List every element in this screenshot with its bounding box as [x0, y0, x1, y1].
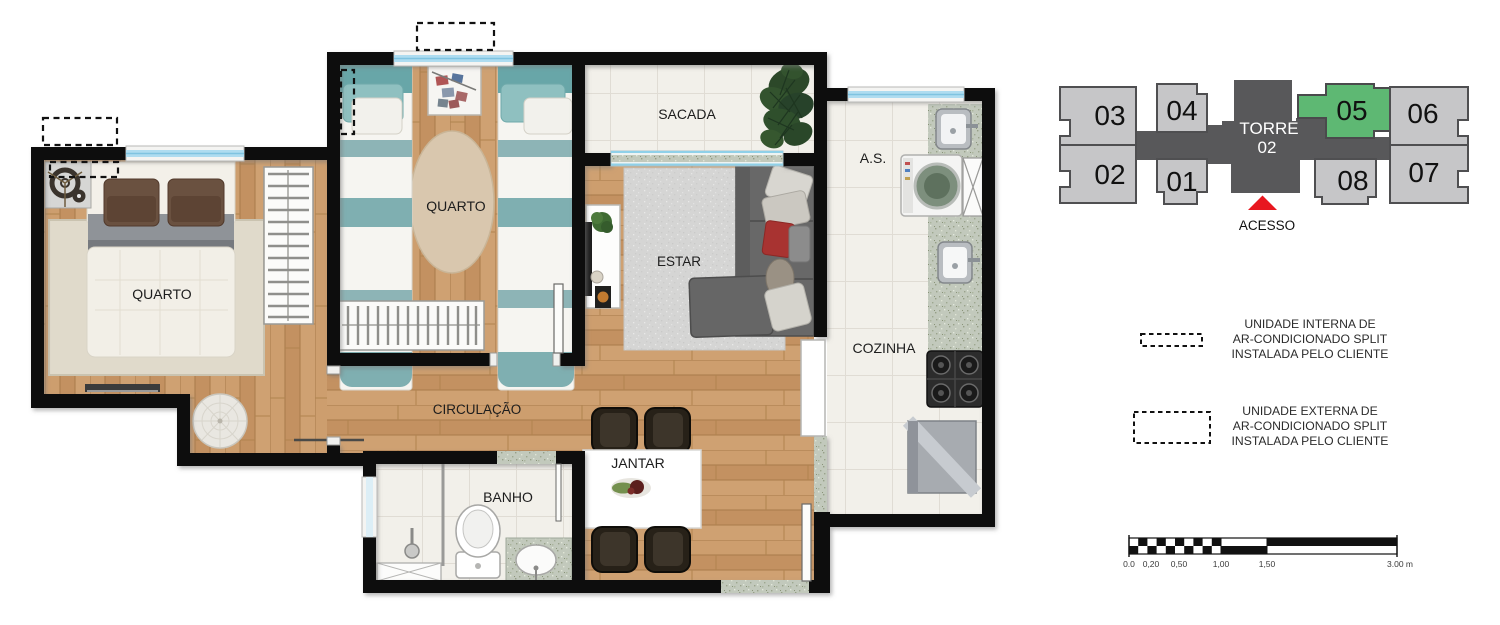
svg-text:AR-CONDICIONADO SPLIT: AR-CONDICIONADO SPLIT: [1233, 419, 1388, 433]
svg-text:04: 04: [1166, 95, 1197, 126]
svg-text:0,20: 0,20: [1143, 559, 1160, 569]
svg-text:3.00 m: 3.00 m: [1387, 559, 1413, 569]
svg-text:UNIDADE INTERNA DE: UNIDADE INTERNA DE: [1244, 317, 1375, 331]
svg-text:AR-CONDICIONADO SPLIT: AR-CONDICIONADO SPLIT: [1233, 332, 1388, 346]
svg-text:05: 05: [1336, 95, 1367, 126]
svg-text:01: 01: [1166, 166, 1197, 197]
svg-text:BANHO: BANHO: [483, 489, 533, 505]
svg-text:INSTALADA PELO CLIENTE: INSTALADA PELO CLIENTE: [1232, 434, 1389, 448]
svg-text:QUARTO: QUARTO: [132, 286, 191, 302]
svg-text:CIRCULAÇÃO: CIRCULAÇÃO: [433, 402, 522, 417]
svg-text:A.S.: A.S.: [860, 150, 886, 166]
svg-text:08: 08: [1337, 165, 1368, 196]
svg-text:JANTAR: JANTAR: [611, 455, 664, 471]
svg-text:1,00: 1,00: [1213, 559, 1230, 569]
svg-text:02: 02: [1258, 138, 1277, 157]
svg-text:0.0: 0.0: [1123, 559, 1135, 569]
svg-text:QUARTO: QUARTO: [426, 198, 485, 214]
svg-text:02: 02: [1094, 159, 1125, 190]
svg-text:ACESSO: ACESSO: [1239, 218, 1295, 233]
svg-text:1,50: 1,50: [1259, 559, 1276, 569]
svg-text:UNIDADE EXTERNA DE: UNIDADE EXTERNA DE: [1242, 404, 1377, 418]
svg-text:03: 03: [1094, 100, 1125, 131]
svg-text:0,50: 0,50: [1171, 559, 1188, 569]
svg-text:ESTAR: ESTAR: [657, 254, 701, 269]
svg-text:INSTALADA PELO CLIENTE: INSTALADA PELO CLIENTE: [1232, 347, 1389, 361]
svg-text:07: 07: [1408, 157, 1439, 188]
svg-text:06: 06: [1407, 98, 1438, 129]
svg-text:TORRE: TORRE: [1239, 119, 1298, 138]
svg-text:SACADA: SACADA: [658, 106, 716, 122]
svg-text:COZINHA: COZINHA: [853, 340, 917, 356]
